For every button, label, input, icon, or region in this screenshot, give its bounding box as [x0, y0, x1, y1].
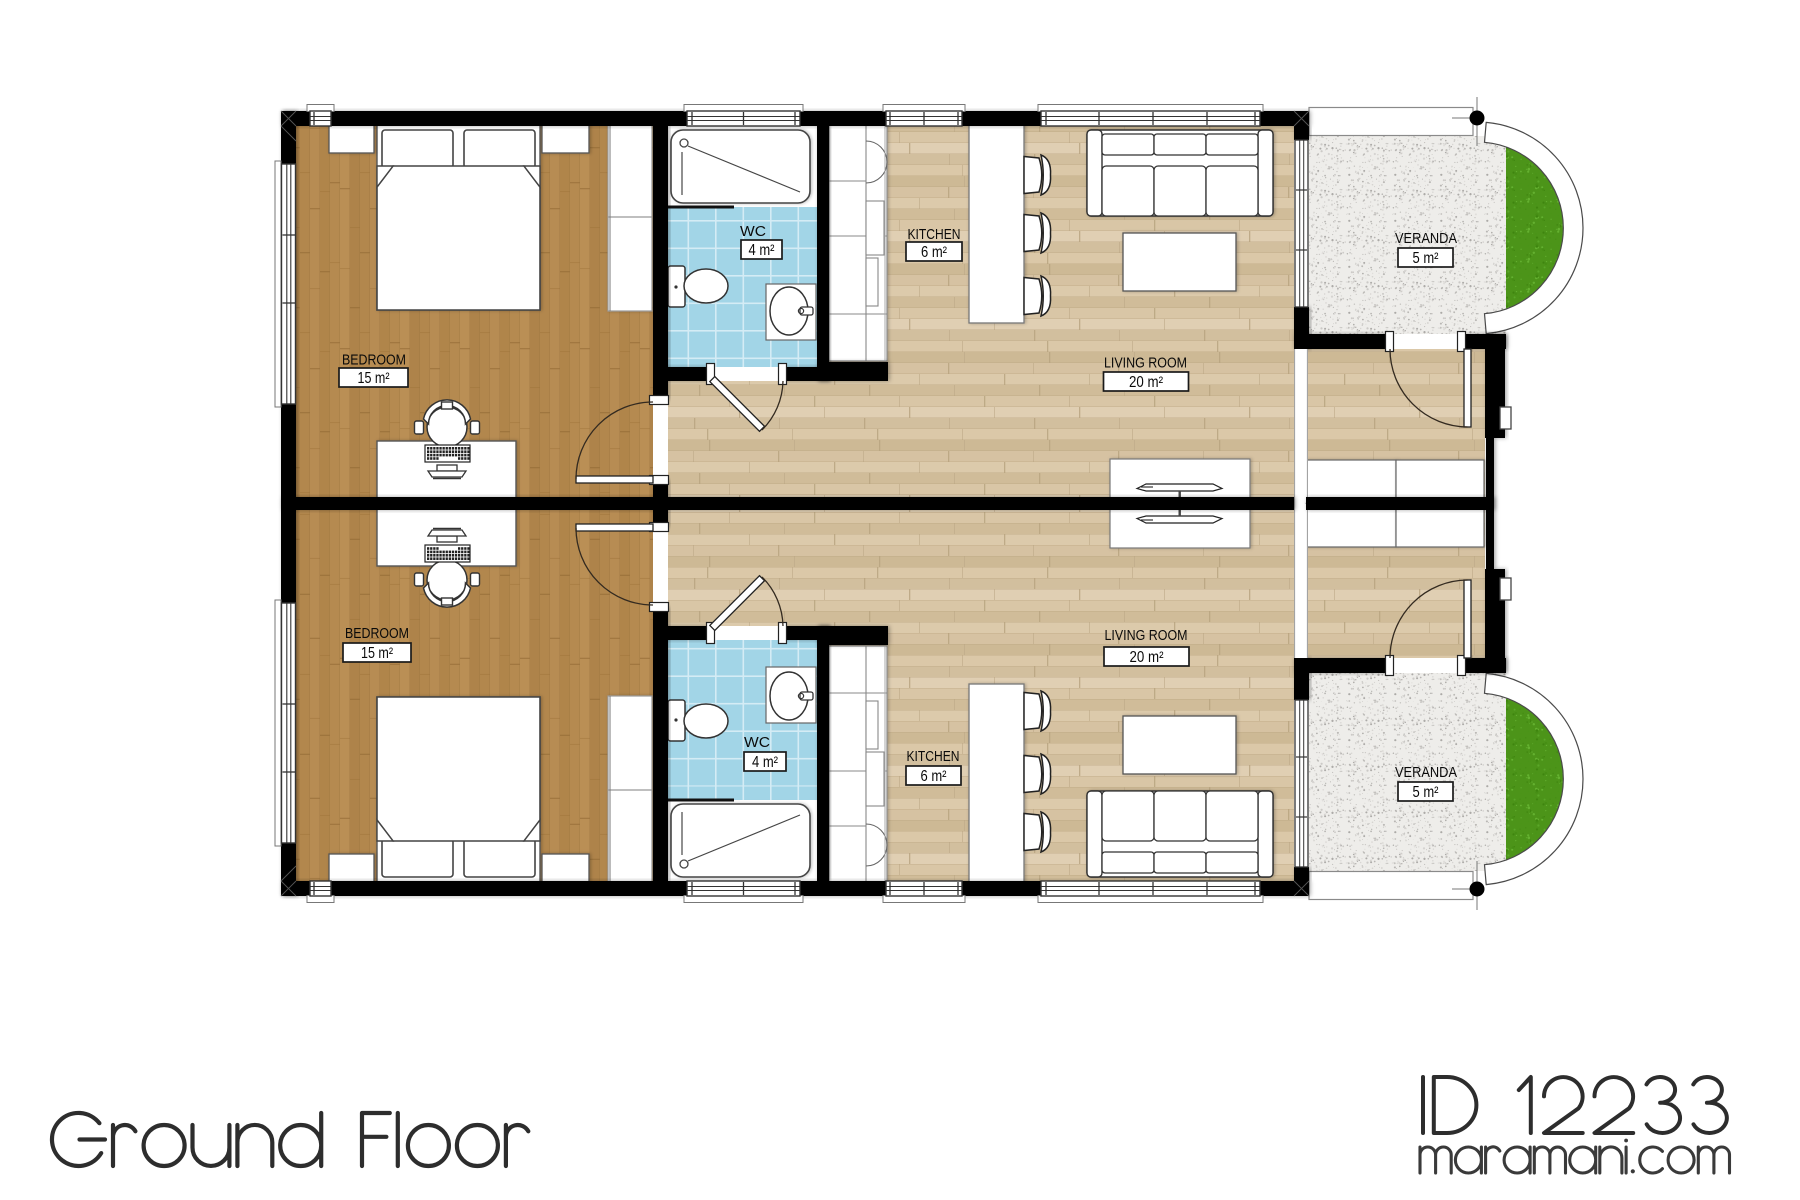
svg-text:5 m²: 5 m² — [1413, 784, 1439, 801]
svg-text:4 m²: 4 m² — [749, 242, 775, 259]
svg-text:WC: WC — [740, 224, 766, 240]
svg-text:6 m²: 6 m² — [921, 244, 947, 261]
svg-text:20 m²: 20 m² — [1130, 649, 1164, 666]
svg-text:VERANDA: VERANDA — [1395, 765, 1457, 781]
svg-text:15 m²: 15 m² — [358, 370, 390, 387]
svg-text:6 m²: 6 m² — [921, 768, 947, 785]
svg-text:BEDROOM: BEDROOM — [345, 626, 409, 642]
svg-text:5 m²: 5 m² — [1413, 250, 1439, 267]
svg-text:BEDROOM: BEDROOM — [342, 353, 406, 369]
svg-text:KITCHEN: KITCHEN — [907, 749, 960, 765]
svg-text:VERANDA: VERANDA — [1395, 231, 1457, 247]
svg-text:4 m²: 4 m² — [752, 754, 778, 771]
svg-text:20 m²: 20 m² — [1129, 374, 1163, 391]
svg-text:LIVING ROOM: LIVING ROOM — [1104, 356, 1187, 372]
svg-text:LIVING ROOM: LIVING ROOM — [1105, 628, 1188, 644]
svg-text:WC: WC — [744, 735, 770, 751]
svg-text:15 m²: 15 m² — [361, 645, 393, 662]
svg-text:KITCHEN: KITCHEN — [908, 227, 961, 243]
